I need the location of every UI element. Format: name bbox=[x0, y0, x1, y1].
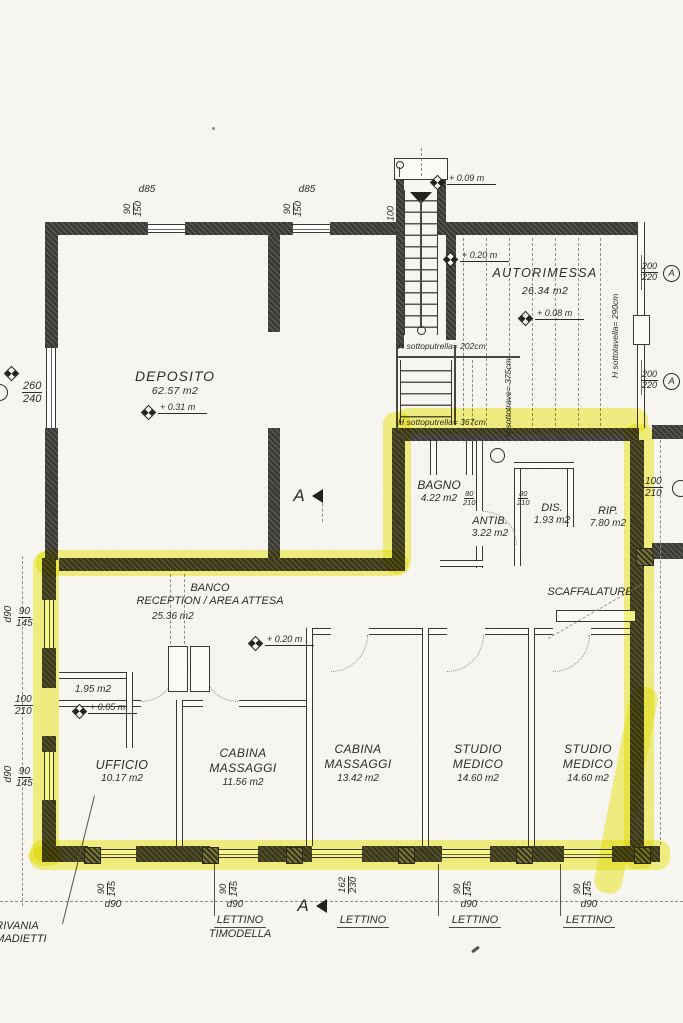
dim-height: 150 bbox=[294, 201, 304, 217]
height-note-trave: H sottotrave= 375cm bbox=[503, 345, 513, 437]
dim-width: 100 bbox=[14, 694, 33, 706]
dim-162-230: 162 230 bbox=[338, 876, 360, 894]
dim-90-145-left1: 90 145 bbox=[16, 606, 33, 629]
wall-studio1-studio2 bbox=[528, 628, 535, 846]
wall-autorimessa-left bbox=[446, 235, 456, 340]
room-name2: RECEPTION / AREA ATTESA bbox=[110, 595, 310, 608]
benchmark-icon bbox=[4, 366, 20, 382]
height-note-lower: H sottoputrella= 367cm bbox=[398, 417, 534, 427]
leader-line bbox=[560, 864, 561, 916]
furniture-name: LETTINO bbox=[449, 914, 501, 928]
ramp-top-line bbox=[398, 356, 520, 358]
stair-symbol-stem bbox=[399, 167, 400, 177]
wall-studio2-top bbox=[591, 628, 630, 635]
ramp-right-line bbox=[454, 345, 456, 425]
highlight-diagonal-stroke bbox=[592, 684, 660, 895]
room-area: 25.36 m2 bbox=[110, 611, 310, 623]
dim-d85-2: d85 bbox=[290, 184, 324, 196]
window-90-145-left1 bbox=[44, 600, 54, 648]
dim-d85-1: d85 bbox=[130, 184, 164, 196]
dim-d90-b1: d90 bbox=[96, 899, 130, 911]
room-area: 1.95 m2 bbox=[64, 684, 122, 696]
room-area: 4.22 m2 bbox=[408, 493, 470, 505]
wall-deposito-partition bbox=[268, 428, 280, 558]
furniture-line1: LETTINO bbox=[214, 914, 266, 928]
door-162-230 bbox=[312, 849, 362, 858]
leader-line bbox=[214, 864, 215, 916]
wall-stub-right bbox=[652, 543, 683, 559]
room-name: CABINA MASSAGGI bbox=[314, 742, 402, 771]
pillar bbox=[516, 847, 533, 864]
room-name: CABINA MASSAGGI bbox=[199, 746, 287, 775]
dim-90-145-b4: 90 145 bbox=[573, 881, 595, 897]
furniture-name: SCAFFALATURE bbox=[538, 586, 642, 599]
label-lettino-timodella: LETTINO TIMODELLA bbox=[200, 914, 280, 942]
wall-left bbox=[45, 428, 58, 560]
wall-left bbox=[45, 222, 58, 348]
dim-d90-b4: d90 bbox=[572, 899, 606, 911]
room-label-bagno: BAGNO 4.22 m2 bbox=[408, 478, 470, 505]
stair-walkline bbox=[420, 200, 422, 328]
furniture-name: LETTINO bbox=[337, 914, 389, 928]
dim-200-220-1: 200 220 bbox=[641, 262, 658, 283]
window-90-145-b4 bbox=[564, 849, 612, 858]
reception-desk bbox=[190, 646, 210, 692]
stair-symbol bbox=[396, 161, 404, 169]
dim-90-150-1: 90 150 bbox=[123, 201, 145, 217]
dim-d90-left1: d90 bbox=[3, 599, 15, 629]
wall-cabina2-top bbox=[369, 628, 422, 635]
dim-100-210-left: 100 210 bbox=[14, 694, 33, 717]
door-arc-cabina2 bbox=[331, 635, 368, 672]
room-label-studio1: STUDIO MEDICO 14.60 m2 bbox=[446, 742, 510, 785]
label-lettino-3: LETTINO bbox=[554, 914, 624, 928]
elevation-stair-top: + 0.09 m bbox=[447, 173, 496, 185]
room-name: DEPOSITO bbox=[115, 368, 235, 385]
dim-height: 220 bbox=[642, 273, 657, 283]
label-lettino-2: LETTINO bbox=[440, 914, 510, 928]
dim-width: 100 bbox=[644, 476, 663, 488]
room-label-anticamera: 1.95 m2 bbox=[64, 684, 122, 696]
furniture-name: LETTINO bbox=[563, 914, 615, 928]
pillar bbox=[286, 847, 303, 864]
stub-bagno bbox=[430, 441, 437, 475]
dim-height: 210 bbox=[645, 488, 662, 499]
pillar bbox=[634, 847, 651, 864]
elevation-deposito: + 0.31 m bbox=[158, 402, 207, 414]
dim-height: 145 bbox=[464, 881, 474, 897]
room-label-disimpegno: DIS. 1.93 m2 bbox=[524, 502, 580, 528]
pillar bbox=[84, 847, 101, 864]
section-marker-a-mid: A bbox=[288, 486, 310, 507]
wall-studio2-top bbox=[535, 628, 553, 635]
wall-bagno-antib bbox=[476, 441, 483, 511]
dim-d90-left2: d90 bbox=[3, 759, 15, 789]
window-d85-1 bbox=[148, 224, 185, 233]
window-d85-2 bbox=[293, 224, 330, 233]
wall-left-lower bbox=[42, 558, 56, 600]
window-90-145-b3 bbox=[442, 849, 490, 858]
wall-autorimessa-right bbox=[637, 345, 645, 360]
room-name: STUDIO MEDICO bbox=[556, 742, 620, 771]
wall-autorimessa-right bbox=[637, 222, 645, 255]
scan-speck bbox=[471, 946, 480, 954]
dim-height: 210 bbox=[517, 499, 530, 507]
dim-height: 145 bbox=[584, 881, 594, 897]
ceiling-hatch bbox=[463, 238, 464, 426]
room-area: 14.60 m2 bbox=[556, 773, 620, 785]
dim-width: 90 bbox=[18, 766, 31, 778]
leader-line bbox=[438, 864, 439, 916]
wall-studio1-top bbox=[485, 628, 528, 635]
elevation-anticamera: + 0.05 m bbox=[88, 702, 137, 714]
stub-bagno bbox=[466, 441, 473, 475]
room-area: 1.93 m2 bbox=[524, 515, 580, 527]
wall-bottom bbox=[136, 846, 210, 862]
dim-d90-b2: d90 bbox=[218, 899, 252, 911]
pillar-right bbox=[633, 315, 650, 345]
dim-260-240: 260 240 bbox=[22, 380, 42, 405]
room-label-ufficio: UFFICIO 10.17 m2 bbox=[78, 758, 166, 785]
wall-top bbox=[45, 222, 148, 235]
wall-cabina1-cabina2 bbox=[306, 628, 313, 846]
dim-90-145-b1: 90 145 bbox=[97, 881, 119, 897]
room-name: DIS. bbox=[524, 502, 580, 515]
furniture-line2: TIMODELLA bbox=[200, 928, 280, 941]
dim-height: 230 bbox=[349, 877, 359, 893]
stair-centerline bbox=[421, 148, 422, 176]
room-label-cabina1: CABINA MASSAGGI 11.56 m2 bbox=[199, 746, 287, 789]
wall-studio1-top bbox=[429, 628, 447, 635]
benchmark-icon bbox=[248, 636, 264, 652]
wall-stub-right bbox=[652, 425, 683, 439]
room-area: 14.60 m2 bbox=[446, 773, 510, 785]
elevation-autorimessa: + 0.08 m bbox=[535, 308, 584, 320]
label-lettino-1: LETTINO bbox=[328, 914, 398, 928]
pillar bbox=[202, 847, 219, 864]
wall-reception-divider bbox=[59, 558, 399, 571]
label-scrivania-armadietti: SCRIVANIA ARMADIETTI bbox=[0, 920, 72, 947]
room-label-cabina2: CABINA MASSAGGI 13.42 m2 bbox=[314, 742, 402, 785]
wall-left-lower bbox=[42, 648, 56, 688]
wall-autorimessa-right bbox=[637, 290, 645, 315]
dim-stair-width: 100 bbox=[386, 198, 397, 228]
wall-bath-bottom-stub bbox=[440, 560, 483, 567]
room-name: BANCO bbox=[110, 582, 310, 595]
benchmark-icon bbox=[518, 311, 534, 327]
room-label-studio2: STUDIO MEDICO 14.60 m2 bbox=[556, 742, 620, 785]
window-type-badge: A bbox=[663, 373, 680, 390]
elevation-stair-landing: + 0.20 m bbox=[460, 250, 509, 262]
section-triangle-icon bbox=[312, 489, 323, 503]
room-name: UFFICIO bbox=[78, 758, 166, 773]
room-label-reception: BANCO RECEPTION / AREA ATTESA 25.36 m2 bbox=[110, 582, 310, 623]
wall-vertical-divider bbox=[392, 428, 405, 571]
dim-height: 210 bbox=[15, 706, 32, 717]
dim-height: 240 bbox=[23, 393, 41, 405]
sink-symbol bbox=[490, 448, 505, 463]
door-arc-studio1 bbox=[447, 635, 484, 672]
elevation-reception: + 0.20 m bbox=[265, 634, 314, 646]
wall-ufficio-cabina1 bbox=[176, 700, 183, 846]
dim-height: 145 bbox=[16, 778, 33, 789]
wall-left-lower bbox=[42, 736, 56, 752]
wall-cabina2-top bbox=[313, 628, 331, 635]
wall-top bbox=[185, 222, 293, 235]
dim-height: 145 bbox=[230, 881, 240, 897]
wall-autorimessa-right bbox=[637, 395, 645, 428]
room-label-ripostiglio: RIP. 7.80 m2 bbox=[578, 505, 638, 531]
reception-desk bbox=[168, 646, 188, 692]
room-area: 7.80 m2 bbox=[578, 518, 638, 530]
door-arc-studio2 bbox=[553, 635, 590, 672]
floor-plan-canvas: DEPOSITO 62.57 m2 + 0.31 m AUTORIMESSA 2… bbox=[0, 0, 683, 1023]
dim-height: 145 bbox=[16, 618, 33, 629]
window-260-240 bbox=[46, 348, 56, 428]
label-scaffalature: SCAFFALATURE bbox=[538, 586, 642, 599]
wall-dis-top bbox=[514, 462, 574, 469]
wall-stair-left bbox=[396, 178, 404, 348]
room-name: ANTIB. bbox=[455, 515, 525, 528]
room-area: 11.56 m2 bbox=[199, 777, 287, 789]
section-marker-a-bottom: A bbox=[292, 896, 314, 917]
dim-90-150-2: 90 150 bbox=[283, 201, 305, 217]
room-label-deposito: DEPOSITO 62.57 m2 bbox=[115, 368, 235, 398]
staircase-lower bbox=[400, 360, 452, 425]
dim-height: 220 bbox=[642, 381, 657, 391]
detail-circle bbox=[0, 384, 8, 401]
room-area: 3.22 m2 bbox=[455, 528, 525, 540]
scan-speck bbox=[212, 127, 215, 130]
dim-80-210-1: 80 210 bbox=[463, 490, 476, 508]
furniture-line1: SCRIVANIA bbox=[0, 920, 72, 933]
wall-cabina1-top bbox=[239, 700, 306, 707]
pillar bbox=[398, 847, 415, 864]
room-name: BAGNO bbox=[408, 478, 470, 493]
room-area: 62.57 m2 bbox=[115, 385, 235, 398]
room-name: STUDIO MEDICO bbox=[446, 742, 510, 771]
dim-width: 260 bbox=[22, 380, 42, 393]
height-note-tavella: H sottotavella= 290cm bbox=[610, 228, 620, 378]
boundary-right bbox=[660, 440, 661, 845]
wall-bottom bbox=[258, 846, 312, 862]
room-name: AUTORIMESSA bbox=[478, 266, 612, 281]
room-area: 13.42 m2 bbox=[314, 773, 402, 785]
stair-walkline-end bbox=[417, 326, 426, 335]
dim-90-145-left2: 90 145 bbox=[16, 766, 33, 789]
wall-cabina2-studio1 bbox=[422, 628, 429, 846]
dim-90-145-b3: 90 145 bbox=[453, 881, 475, 897]
wall-deposito-partition bbox=[268, 235, 280, 332]
room-label-autorimessa: AUTORIMESSA 26.34 m2 bbox=[478, 266, 612, 298]
wall-cabina1-top bbox=[183, 700, 203, 707]
room-label-antibagno: ANTIB. 3.22 m2 bbox=[455, 515, 525, 541]
room-name: RIP. bbox=[578, 505, 638, 518]
dim-width: 90 bbox=[18, 606, 31, 618]
dim-height: 145 bbox=[108, 881, 118, 897]
deposito-right-line bbox=[396, 348, 398, 428]
dim-height: 150 bbox=[134, 201, 144, 217]
dim-200-220-2: 200 220 bbox=[641, 370, 658, 391]
dim-100-210-right: 100 210 bbox=[644, 476, 663, 499]
shelving-unit bbox=[556, 610, 636, 622]
window-type-badge: A bbox=[663, 265, 680, 282]
wall-anticamera-top bbox=[59, 672, 133, 679]
room-area: 26.34 m2 bbox=[478, 285, 612, 298]
dim-height: 210 bbox=[463, 499, 476, 507]
dim-80-210-2: 80 210 bbox=[517, 490, 530, 508]
benchmark-icon bbox=[141, 405, 157, 421]
section-triangle-icon bbox=[316, 899, 327, 913]
dim-90-145-b2: 90 145 bbox=[219, 881, 241, 897]
wall-bath-top bbox=[399, 428, 639, 441]
detail-circle bbox=[672, 480, 683, 497]
window-90-145-left2 bbox=[44, 752, 54, 800]
furniture-line2: ARMADIETTI bbox=[0, 933, 72, 946]
wall-right bbox=[630, 440, 644, 862]
room-area: 10.17 m2 bbox=[78, 773, 166, 785]
dim-d90-b3: d90 bbox=[452, 899, 486, 911]
